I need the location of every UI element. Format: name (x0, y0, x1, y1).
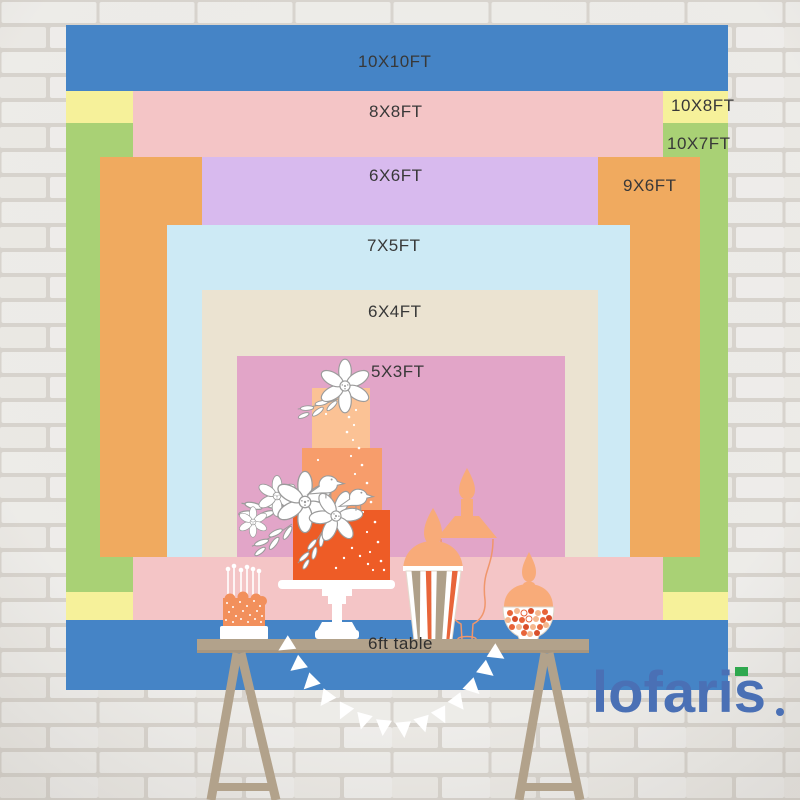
logo-green-accent-icon (735, 667, 748, 676)
backdrop-size-chart-image: 10X10FT 8X8FT 10X8FT 10X7FT 6X6FT 9X6FT … (0, 0, 800, 800)
candle-cake-illustration (220, 564, 268, 640)
table-size-label: 6ft table (368, 634, 433, 654)
cake-stand (278, 580, 395, 639)
logo-dot-icon (776, 708, 784, 716)
trestle-table-illustration (197, 639, 589, 800)
lofaris-logo: lofaris (592, 664, 800, 734)
candy-jar-illustration (503, 552, 554, 641)
